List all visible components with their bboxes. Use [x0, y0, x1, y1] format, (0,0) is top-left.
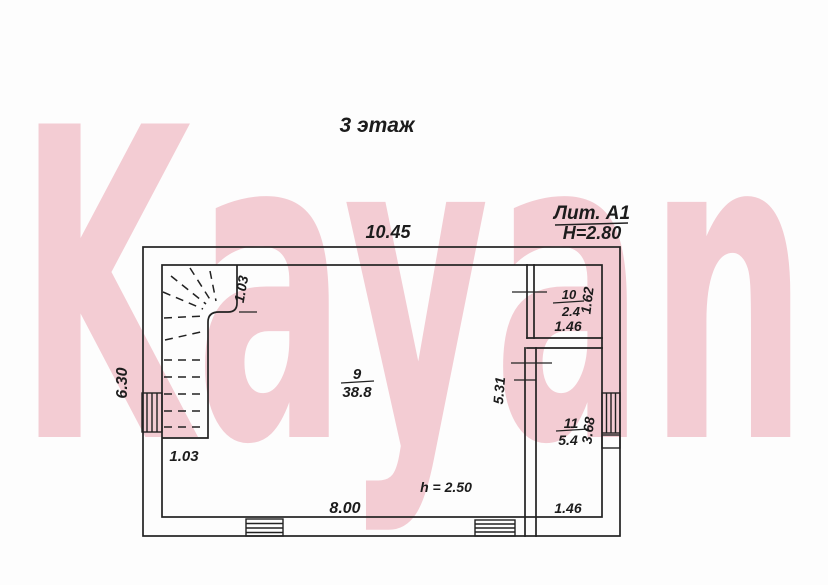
room9-area: 38.8 — [342, 384, 372, 401]
dim-room10-width: 1.46 — [554, 318, 581, 334]
dim-top-width: 10.45 — [365, 222, 411, 242]
stair-outline — [162, 265, 237, 438]
room9-number: 9 — [353, 366, 362, 383]
dim-room11-height: 3.68 — [578, 416, 597, 445]
dim-room10-height: 1.62 — [577, 286, 596, 315]
room11-area: 5.4 — [558, 432, 578, 448]
dim-left-height: 6.30 — [114, 367, 131, 398]
window-bottom-right-hatch — [475, 524, 515, 532]
dim-stair-lower: 1.03 — [169, 448, 199, 465]
stair-tread-line — [164, 316, 204, 318]
stair-tread-line — [171, 276, 206, 304]
dim-interior-wall: 5.31 — [490, 376, 508, 405]
window-right-sill — [602, 435, 620, 448]
floorplan-drawing: 3 этаж Лит. А1 Н=2.80 10.45 6.30 1.03 1.… — [0, 0, 828, 585]
dim-stair-upper: 1.03 — [231, 274, 252, 304]
liter-label: Лит. А1 — [552, 203, 630, 224]
room11-number: 11 — [564, 415, 579, 431]
dim-hall-width: 8.00 — [329, 500, 360, 517]
windows — [142, 393, 620, 536]
room-height-note: h = 2.50 — [420, 479, 472, 495]
room10-number: 10 — [562, 287, 577, 302]
stair-tread-line — [165, 331, 205, 340]
stair-tread-line — [210, 271, 216, 301]
wall-room10-bottom — [527, 338, 602, 348]
wall-room10-left — [527, 265, 534, 338]
floor-title: 3 этаж — [340, 114, 416, 137]
window-right-hatch — [607, 393, 616, 433]
window-left-hatch — [147, 393, 157, 432]
window-bottom-left-hatch — [246, 524, 283, 533]
building-height-label: Н=2.80 — [563, 223, 622, 243]
stair-tread-line — [163, 292, 203, 309]
floorplan-scan: Kayan — [0, 0, 828, 585]
dim-room11-width: 1.46 — [554, 500, 581, 516]
labels: 3 этаж Лит. А1 Н=2.80 10.45 6.30 1.03 1.… — [114, 114, 630, 517]
stair-tread-line — [190, 268, 211, 301]
wall-room11-left — [525, 348, 536, 536]
